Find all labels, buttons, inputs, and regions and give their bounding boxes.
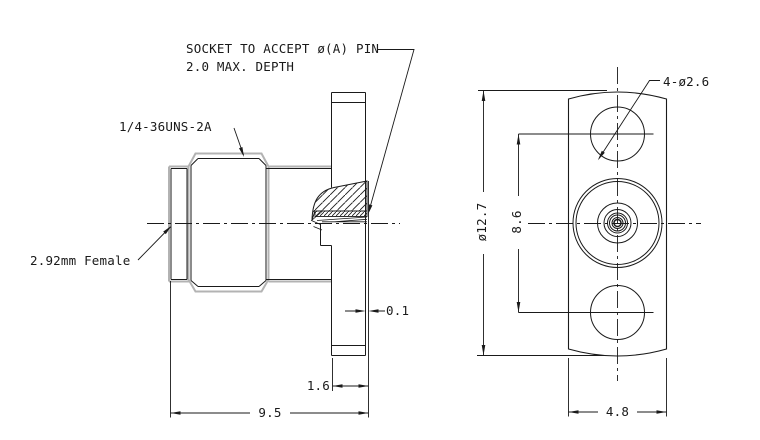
- front-dimension-arrows: [482, 91, 667, 414]
- mounting-holes-label: 4-ø2.6: [663, 75, 709, 89]
- side-view: [138, 50, 414, 418]
- thread-spec-label: 1/4-36UNS-2A: [119, 120, 212, 134]
- socket-note-line1: SOCKET TO ACCEPT ø(A) PIN: [186, 42, 379, 56]
- side-dimension-arrows: [171, 309, 379, 415]
- dim-boss-height: 0.1: [386, 304, 409, 318]
- dim-flange-thickness: 1.6: [298, 379, 330, 393]
- side-dimension-lines: [171, 281, 386, 418]
- dim-hole-spacing: 8.6: [510, 210, 524, 233]
- dim-flange-diameter: ø12.7: [475, 203, 489, 242]
- body-outline: [171, 93, 369, 418]
- technical-drawing-page: SOCKET TO ACCEPT ø(A) PIN 2.0 MAX. DEPTH…: [0, 0, 760, 440]
- drawing-linework: [0, 0, 760, 440]
- front-dimension-lines: [477, 81, 667, 417]
- bead-section: [312, 181, 368, 230]
- front-view: [477, 67, 701, 417]
- dim-flange-width: 4.8: [595, 405, 640, 419]
- side-leaders: [138, 50, 414, 261]
- dim-overall-length: 9.5: [248, 406, 292, 420]
- connector-type-label: 2.92mm Female: [30, 254, 130, 268]
- socket-note-line2: 2.0 MAX. DEPTH: [186, 60, 294, 74]
- body-silhouette: [169, 154, 332, 292]
